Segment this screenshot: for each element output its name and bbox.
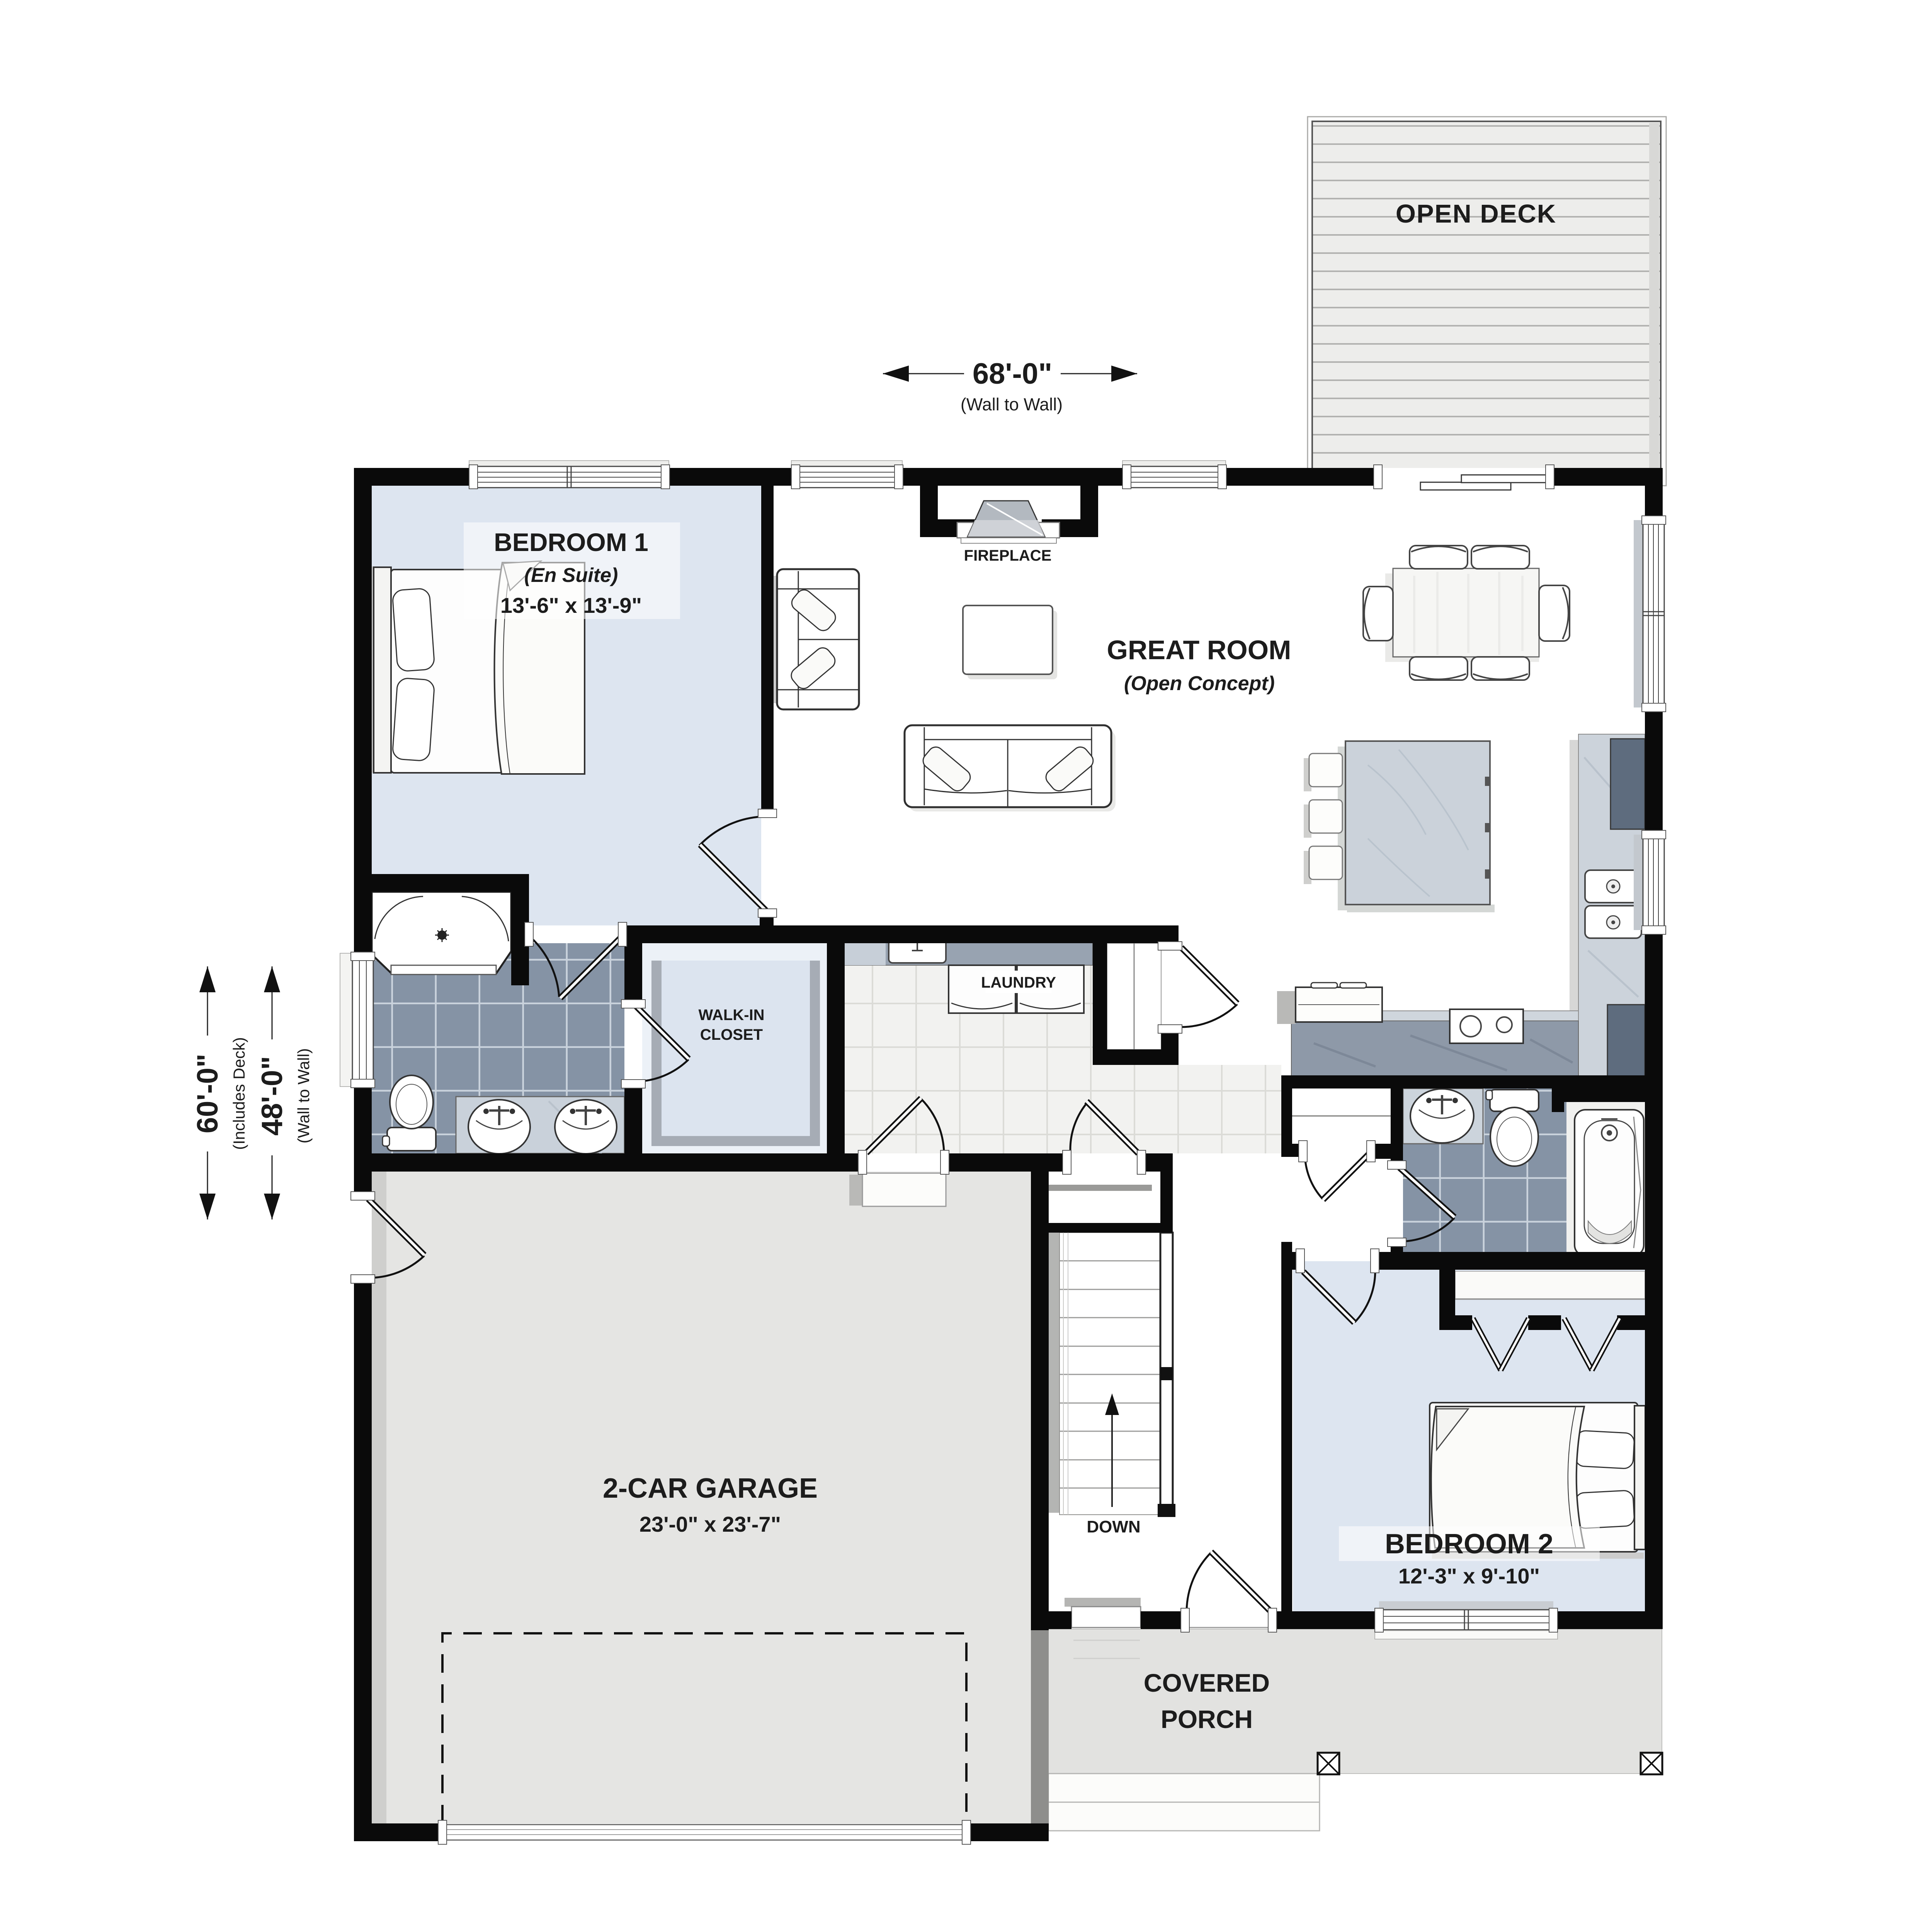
svg-text:FIREPLACE: FIREPLACE [964, 547, 1052, 564]
svg-text:CLOSET: CLOSET [700, 1026, 763, 1043]
svg-text:COVERED: COVERED [1144, 1668, 1270, 1697]
svg-text:PORCH: PORCH [1161, 1705, 1253, 1733]
svg-text:LAUNDRY: LAUNDRY [981, 974, 1056, 991]
svg-text:68'-0": 68'-0" [973, 357, 1052, 390]
svg-text:12'-3" x 9'-10": 12'-3" x 9'-10" [1398, 1564, 1540, 1588]
svg-text:DOWN: DOWN [1087, 1517, 1140, 1536]
svg-text:OPEN DECK: OPEN DECK [1396, 199, 1556, 228]
svg-text:(Wall to Wall): (Wall to Wall) [294, 1048, 313, 1144]
svg-text:(Wall to Wall): (Wall to Wall) [961, 395, 1063, 414]
svg-text:60'-0": 60'-0" [191, 1054, 224, 1133]
svg-text:13'-6" x 13'-9": 13'-6" x 13'-9" [500, 593, 642, 617]
svg-text:BEDROOM 2: BEDROOM 2 [1385, 1529, 1553, 1560]
svg-text:(Includes Deck): (Includes Deck) [230, 1037, 248, 1150]
svg-text:BEDROOM 1: BEDROOM 1 [494, 528, 648, 556]
svg-text:(En Suite): (En Suite) [524, 564, 618, 587]
svg-text:WALK-IN: WALK-IN [698, 1007, 764, 1024]
svg-text:GREAT ROOM: GREAT ROOM [1107, 635, 1291, 665]
svg-text:23'-0" x 23'-7": 23'-0" x 23'-7" [639, 1512, 781, 1536]
svg-text:(Open Concept): (Open Concept) [1124, 672, 1275, 695]
svg-text:48'-0": 48'-0" [256, 1056, 289, 1136]
svg-text:2-CAR GARAGE: 2-CAR GARAGE [603, 1473, 818, 1504]
